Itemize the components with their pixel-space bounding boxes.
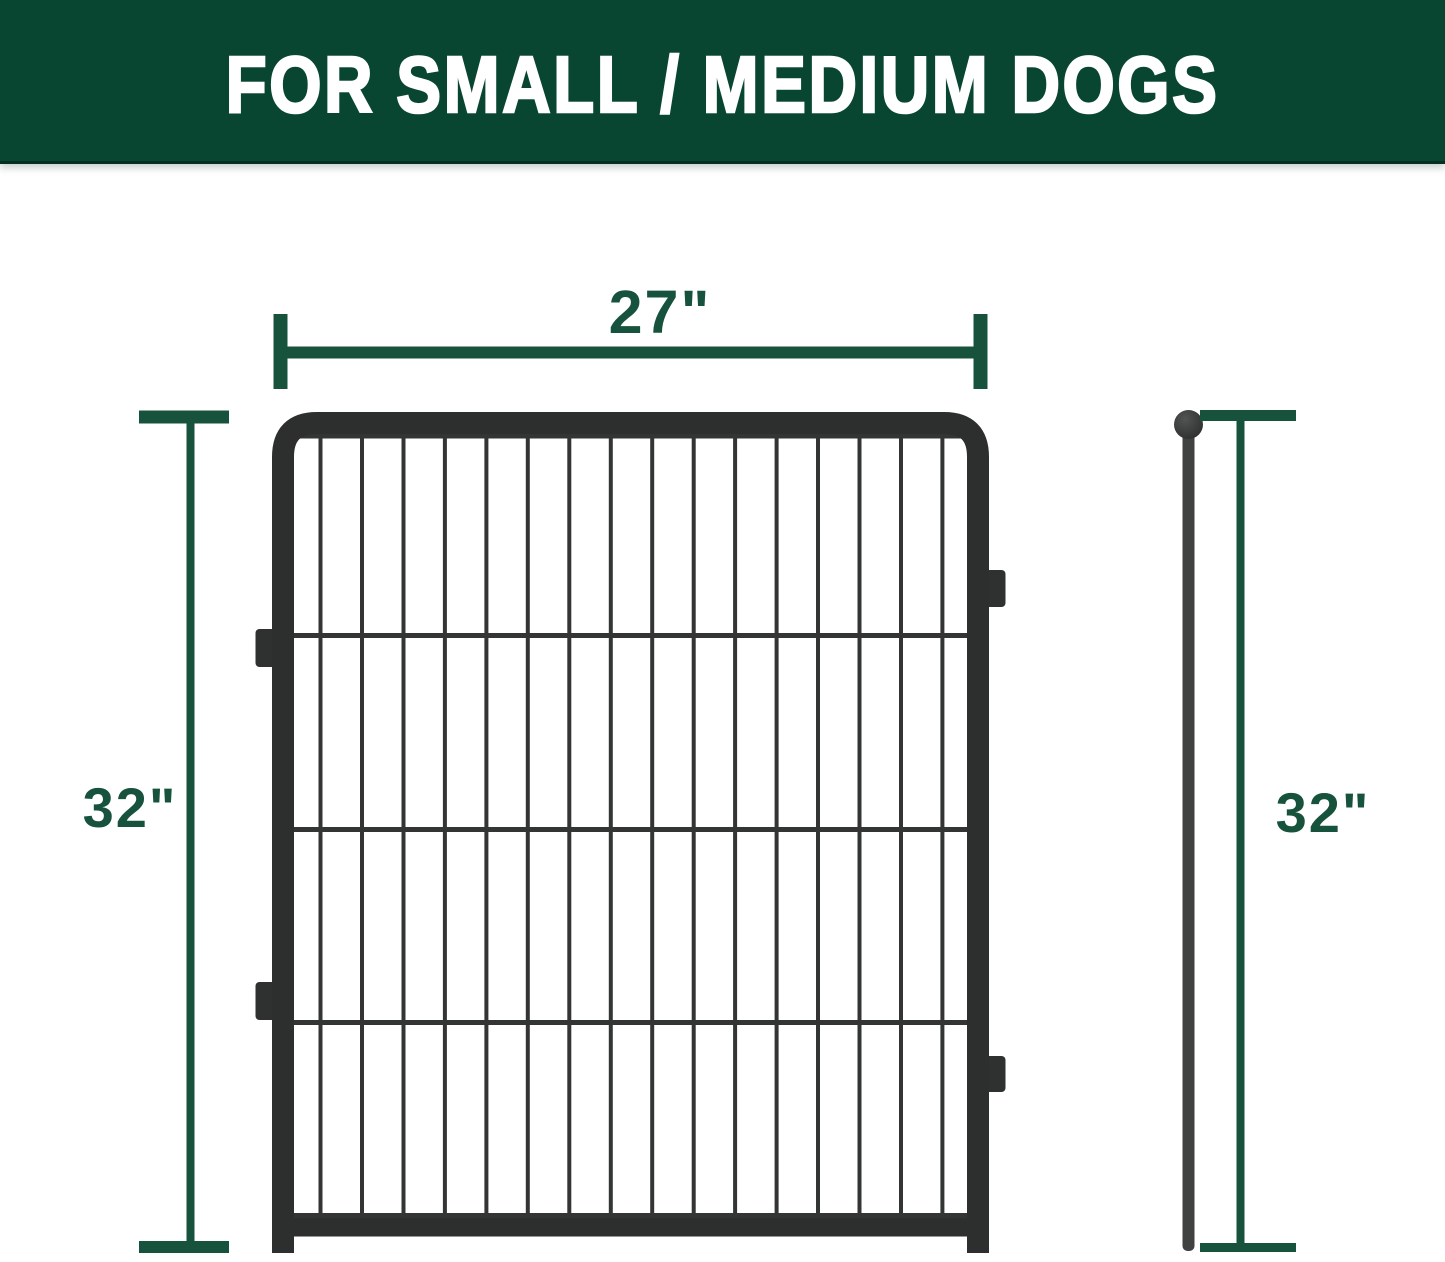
svg-text:32": 32" <box>1276 781 1371 844</box>
svg-text:27": 27" <box>609 278 712 346</box>
svg-text:32": 32" <box>83 776 178 839</box>
